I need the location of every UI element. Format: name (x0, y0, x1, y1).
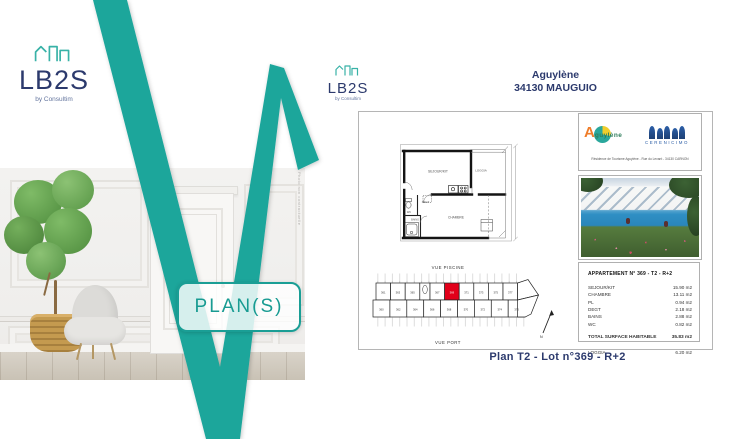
unit-number: 363 (396, 291, 401, 295)
unit-number: 367 (435, 291, 440, 295)
keyplan: VUE PISCINE (370, 256, 565, 348)
cerenicimo-logo: CERENICIMO (638, 126, 696, 145)
label-chambre: CHAMBRE (448, 216, 464, 220)
residence-address: Résidence de Tourisme Aguylène - Rue du … (579, 157, 701, 161)
floorplan-thin-lines (471, 147, 508, 239)
detail-row: DEGT 2.18 m2 (588, 306, 692, 313)
north-arrow-icon: N (540, 310, 554, 339)
room-area: 15.90 m2 (673, 284, 692, 291)
detail-row: WC 0.82 m2 (588, 321, 692, 328)
residence-name: Aguylène (468, 69, 643, 82)
floorplan: SEJOUR/KIT LOGGIA DEGT CHAMBRE WC BAINS (395, 138, 520, 250)
unit-number: 372 (481, 308, 486, 312)
room-label: WC (588, 321, 596, 328)
plans-button[interactable]: PLAN(S) (177, 282, 301, 332)
loggia-area: 6.20 m2 (675, 349, 692, 356)
detail-row: CHAMBRE 13.11 m2 (588, 291, 692, 298)
furniture (423, 196, 493, 231)
residence-city: 34130 MAUGUIO (468, 82, 643, 95)
room-area: 0.94 m2 (675, 299, 692, 306)
room-area: 13.11 m2 (673, 291, 692, 298)
total-row: TOTAL SURFACE HABITABLE 35.83 m2 (588, 334, 692, 342)
aguylene-initial: A (584, 124, 595, 141)
room-area: 0.82 m2 (675, 321, 692, 328)
ribbon-shape (93, 0, 319, 439)
unit-number: 373 (479, 291, 484, 295)
unit-number: 366 (430, 308, 435, 312)
unit-number: 361 (381, 291, 386, 295)
unit-number: 376 (514, 308, 519, 312)
room-label: DEGT (588, 306, 601, 313)
apartment-details-box: APPARTEMENT N° 369 - T2 - R+2 SEJOUR/KIT… (578, 262, 700, 342)
plans-button-label: PLAN(S) (195, 296, 284, 318)
cerenicimo-arches-icon (638, 126, 696, 139)
label-wc: WC (407, 210, 411, 214)
unit-number: 368 (447, 308, 452, 312)
vue-port-label: VUE PORT (435, 340, 461, 345)
room-area: 2.18 m2 (675, 306, 692, 313)
kitchen-block (449, 186, 469, 194)
lb2s-wordmark: LB2S (312, 81, 384, 96)
residence-title: Aguylène 34130 MAUGUIO (468, 69, 643, 94)
unit-number: 364 (413, 308, 418, 312)
label-bains: BAINS (411, 218, 419, 222)
unit-number: 371 (464, 291, 469, 295)
vue-piscine-label: VUE PISCINE (432, 265, 465, 270)
room-area: 2.88 m2 (675, 313, 692, 320)
plan-caption: Plan T2 - Lot n°369 - R+2 (450, 351, 665, 363)
page: LB2S by Consultim (0, 0, 750, 439)
aguylene-name: guylène (595, 132, 622, 139)
unit-number: 365 (410, 291, 415, 295)
room-label: SEJOUR/KIT (588, 284, 615, 291)
total-label: TOTAL SURFACE HABITABLE (588, 334, 656, 342)
label-loggia: LOGGIA (475, 169, 487, 173)
total-area: 35.83 m2 (672, 334, 692, 342)
room-label: BAINS (588, 313, 602, 320)
boundary-hatch-bottom (373, 318, 525, 327)
buildings-icon (333, 63, 363, 76)
unit-number: 374 (497, 308, 502, 312)
unit-number: 377 (508, 291, 513, 295)
dimension-line (513, 144, 517, 241)
unit-number: 370 (464, 308, 469, 312)
apartment-header: APPARTEMENT N° 369 - T2 - R+2 (588, 271, 692, 277)
detail-row: PL 0.94 m2 (588, 299, 692, 306)
room-label: PL (588, 299, 594, 306)
detail-row: BAINS 2.88 m2 (588, 313, 692, 320)
bathroom-fixtures (405, 199, 419, 237)
residence-photo (581, 178, 699, 257)
label-degt: DEGT (422, 200, 430, 204)
unit-number-highlighted: 369 (450, 291, 455, 295)
person (626, 218, 630, 224)
room-label: CHAMBRE (588, 291, 611, 298)
lb2s-byline: by Consultim (312, 97, 384, 102)
residence-photo-box (578, 175, 702, 260)
unit-numbers-bottom: 360 362 364 366 368 370 372 374 376 (379, 308, 519, 312)
unit-number: 362 (396, 308, 401, 312)
north-label: N (540, 335, 543, 339)
partner-logos-box: Aguylène CERENICIMO Résidence de Tourism… (578, 113, 702, 171)
unit-number: 375 (493, 291, 498, 295)
person (664, 221, 668, 227)
lb2s-logo-right: LB2S by Consultim (312, 63, 384, 102)
aguylene-logo: Aguylène (584, 124, 636, 146)
cerenicimo-name: CERENICIMO (638, 140, 696, 145)
garden-flowers (581, 228, 699, 257)
detail-row: SEJOUR/KIT 15.90 m2 (588, 284, 692, 291)
label-sejour: SEJOUR/KIT (428, 170, 448, 174)
unit-number: 360 (379, 308, 384, 312)
